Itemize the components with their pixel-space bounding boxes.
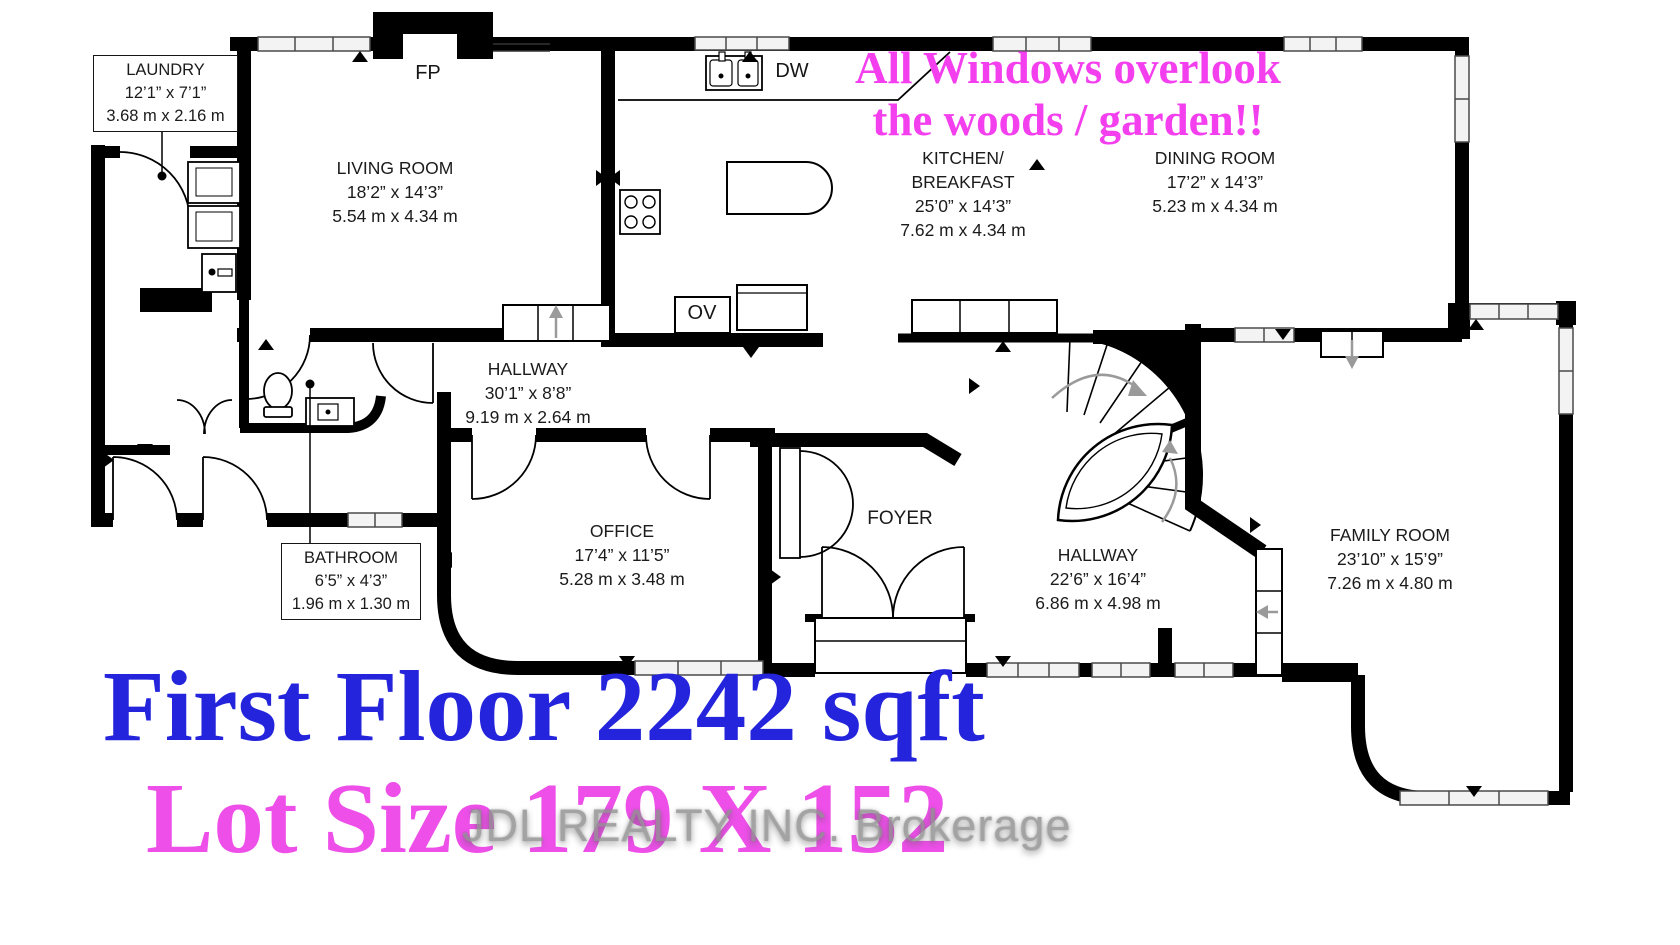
room-label-dining: DINING ROOM 17’2” x 14’3” 5.23 m x 4.34 … (1152, 146, 1277, 218)
fireplace-opening (403, 34, 457, 59)
room-name: LAUNDRY (96, 59, 235, 82)
stair-center-rail (1058, 424, 1172, 521)
windows-annotation: All Windows overlook the woods / garden!… (828, 42, 1308, 146)
entry-door-right (893, 547, 964, 618)
closet-door-2 (203, 457, 267, 520)
dishwasher-label: DW (775, 60, 808, 83)
room-label-hallway-rear: HALLWAY 22’6” x 16’4” 6.86 m x 4.98 m (1035, 543, 1160, 615)
oven-label: OV (688, 302, 717, 325)
steps (503, 300, 1383, 675)
office-door-2 (646, 435, 710, 499)
toilet (264, 373, 292, 409)
bifold-closet-doors (177, 400, 232, 434)
fridge (737, 285, 807, 330)
room-label-kitchen: KITCHEN/ BREAKFAST 25’0” x 14’3” 7.62 m … (900, 146, 1025, 243)
room-imperial: 12’1” x 7’1” (96, 82, 235, 105)
floor-plan-page: LAUNDRY 12’1” x 7’1” 3.68 m x 2.16 m LIV… (0, 0, 1680, 945)
room-label-hallway-main: HALLWAY 30’1” x 8’8” 9.19 m x 2.64 m (465, 357, 590, 429)
fireplace-label: FP (415, 62, 441, 85)
floor-area-text: First Floor 2242 sqft (103, 648, 985, 764)
office-door-1 (472, 435, 536, 499)
room-label-family: FAMILY ROOM 23’10” x 15’9” 7.26 m x 4.80… (1327, 523, 1452, 595)
closet-door-1 (113, 457, 177, 520)
entry-door-left (822, 547, 893, 618)
laundry-door (120, 152, 190, 222)
brokerage-watermark: JDL REALTY INC. Brokerage (462, 800, 1071, 852)
foyer-closet-doors (800, 451, 853, 557)
room-label-living: LIVING ROOM 18’2” x 14’3” 5.54 m x 4.34 … (332, 156, 457, 228)
bench (912, 300, 1057, 333)
bathroom-door (373, 343, 433, 403)
bathroom-label-box: BATHROOM 6’5” x 4’3” 1.96 m x 1.30 m (281, 543, 421, 620)
laundry-label-box: LAUNDRY 12’1” x 7’1” 3.68 m x 2.16 m (93, 55, 238, 132)
kitchen-island (727, 162, 832, 214)
stove (620, 190, 660, 234)
room-label-foyer: FOYER (867, 506, 932, 532)
room-label-office: OFFICE 17’4” x 11’5” 5.28 m x 3.48 m (559, 519, 684, 591)
room-metric: 3.68 m x 2.16 m (96, 105, 235, 128)
